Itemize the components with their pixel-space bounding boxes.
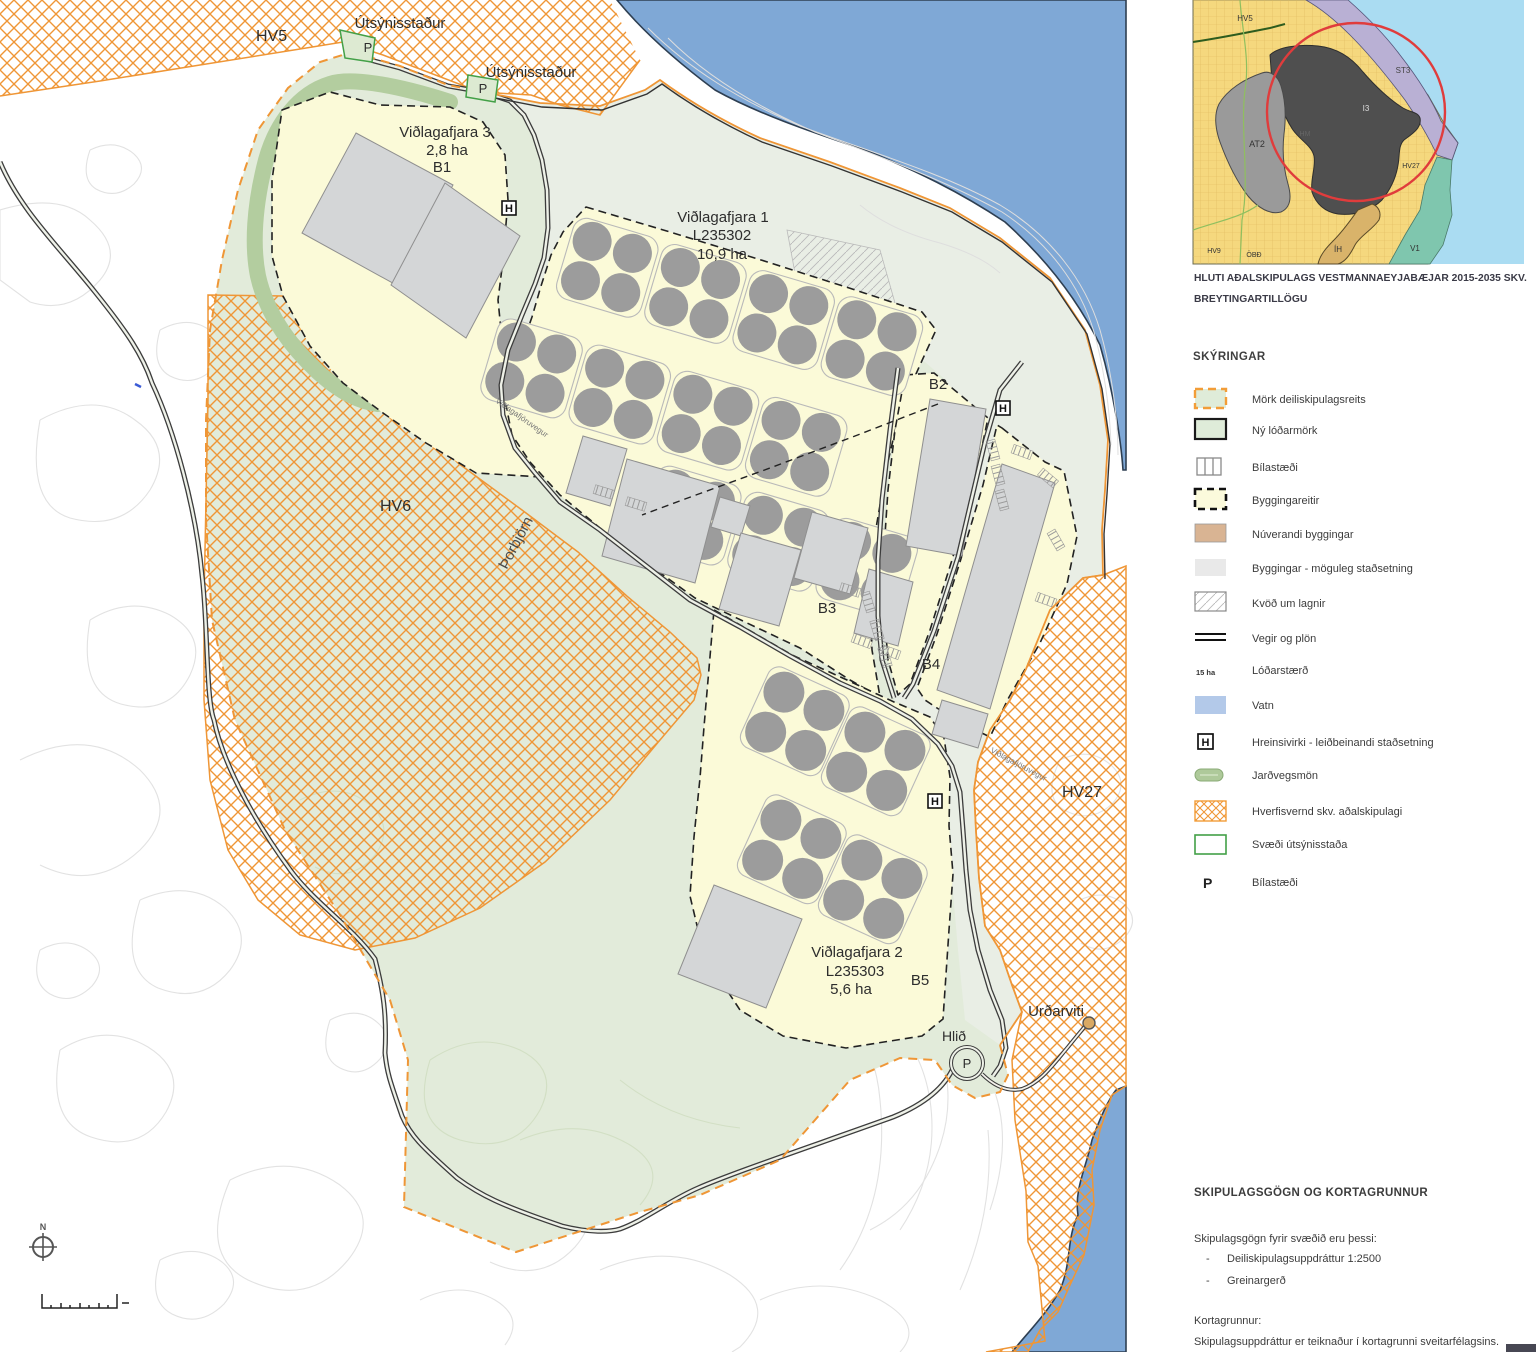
svg-text:Byggingar - möguleg staðsetnin: Byggingar - möguleg staðsetning	[1252, 563, 1413, 575]
svg-text:Lóðarstærð: Lóðarstærð	[1252, 665, 1308, 677]
svg-text:Bílastæði: Bílastæði	[1252, 462, 1298, 474]
svg-text:Kortagrunnur:: Kortagrunnur:	[1194, 1315, 1261, 1327]
svg-text:P: P	[963, 1056, 972, 1071]
svg-text:ÍH: ÍH	[1334, 245, 1342, 254]
svg-text:Núverandi byggingar: Núverandi byggingar	[1252, 529, 1354, 541]
svg-text:SKIPULAGSGÖGN OG KORTAGRUNNUR: SKIPULAGSGÖGN OG KORTAGRUNNUR	[1194, 1186, 1428, 1199]
svg-text:BREYTINGARTILLÖGU: BREYTINGARTILLÖGU	[1194, 292, 1307, 305]
svg-text:ÖBÐ: ÖBÐ	[1246, 251, 1261, 259]
svg-text:Greinargerð: Greinargerð	[1227, 1275, 1286, 1287]
svg-text:Urðarviti: Urðarviti	[1028, 1003, 1084, 1020]
svg-text:Vatn: Vatn	[1252, 700, 1274, 712]
svg-text:-: -	[1206, 1275, 1210, 1287]
svg-text:Hverfisvernd skv. aðalskipulag: Hverfisvernd skv. aðalskipulagi	[1252, 806, 1402, 818]
svg-text:N: N	[40, 1222, 47, 1232]
svg-text:Útsýnisstaður: Útsýnisstaður	[486, 64, 577, 81]
svg-text:ST3: ST3	[1396, 66, 1411, 75]
svg-text:HLUTI AÐALSKIPULAGS VESTMANNAE: HLUTI AÐALSKIPULAGS VESTMANNAEYJABÆJAR 2…	[1194, 273, 1527, 284]
svg-text:AT2: AT2	[1249, 139, 1265, 149]
svg-text:Deiliskipulagsuppdráttur 1:250: Deiliskipulagsuppdráttur 1:2500	[1227, 1253, 1381, 1265]
svg-text:15 ha: 15 ha	[1196, 668, 1216, 677]
svg-text:2,8 ha: 2,8 ha	[426, 142, 468, 159]
svg-text:Skipulagsgögn fyrir svæðið eru: Skipulagsgögn fyrir svæðið eru þessi:	[1194, 1233, 1377, 1245]
svg-text:B2: B2	[929, 376, 947, 393]
svg-text:Hlið: Hlið	[942, 1028, 966, 1044]
svg-text:H: H	[1202, 737, 1210, 749]
svg-text:B1: B1	[433, 159, 451, 176]
svg-text:10,9 ha: 10,9 ha	[697, 246, 748, 263]
svg-text:B5: B5	[911, 972, 929, 989]
svg-text:Kvöð um lagnir: Kvöð um lagnir	[1252, 598, 1326, 610]
svg-text:HM: HM	[1300, 131, 1311, 138]
svg-text:H: H	[505, 203, 513, 215]
svg-text:HV9: HV9	[1207, 248, 1221, 255]
svg-text:Vegir og plön: Vegir og plön	[1252, 633, 1316, 645]
svg-text:P: P	[479, 81, 488, 96]
svg-text:HV5: HV5	[1237, 14, 1253, 23]
svg-text:Skipulagsuppdráttur er teiknað: Skipulagsuppdráttur er teiknaður í korta…	[1194, 1336, 1499, 1348]
svg-text:Svæði útsýnisstaða: Svæði útsýnisstaða	[1252, 839, 1348, 851]
svg-text:Hreinsivirki - leiðbeinandi st: Hreinsivirki - leiðbeinandi staðsetning	[1252, 737, 1434, 749]
svg-text:B4: B4	[922, 656, 940, 673]
svg-text:HV6: HV6	[380, 498, 411, 515]
svg-text:Viðlagafjara 1: Viðlagafjara 1	[677, 209, 768, 226]
svg-text:L235303: L235303	[826, 963, 884, 980]
svg-text:Viðlagafjara 2: Viðlagafjara 2	[811, 944, 902, 961]
svg-text:-: -	[1206, 1253, 1210, 1265]
svg-text:5,6 ha: 5,6 ha	[830, 981, 872, 998]
svg-text:P: P	[1203, 875, 1212, 891]
svg-text:I3: I3	[1363, 104, 1370, 113]
svg-text:HV27: HV27	[1062, 784, 1102, 801]
svg-text:Ný lóðarmörk: Ný lóðarmörk	[1252, 425, 1318, 437]
svg-text:V1: V1	[1410, 244, 1420, 253]
svg-text:Viðlagafjara 3: Viðlagafjara 3	[399, 124, 490, 141]
svg-text:SKÝRINGAR: SKÝRINGAR	[1193, 350, 1266, 363]
svg-text:HV5: HV5	[256, 28, 287, 45]
svg-text:P: P	[364, 40, 373, 55]
svg-text:Bílastæði: Bílastæði	[1252, 877, 1298, 889]
svg-text:B3: B3	[818, 600, 836, 617]
svg-text:L235302: L235302	[693, 227, 751, 244]
svg-text:H: H	[999, 403, 1007, 415]
svg-text:Byggingareitir: Byggingareitir	[1252, 495, 1320, 507]
svg-text:Jarðvegsmön: Jarðvegsmön	[1252, 770, 1318, 782]
svg-text:Mörk deiliskipulagsreits: Mörk deiliskipulagsreits	[1252, 394, 1366, 406]
svg-text:HV27: HV27	[1402, 163, 1420, 170]
svg-text:Útsýnisstaður: Útsýnisstaður	[355, 15, 446, 32]
svg-text:H: H	[931, 796, 939, 808]
